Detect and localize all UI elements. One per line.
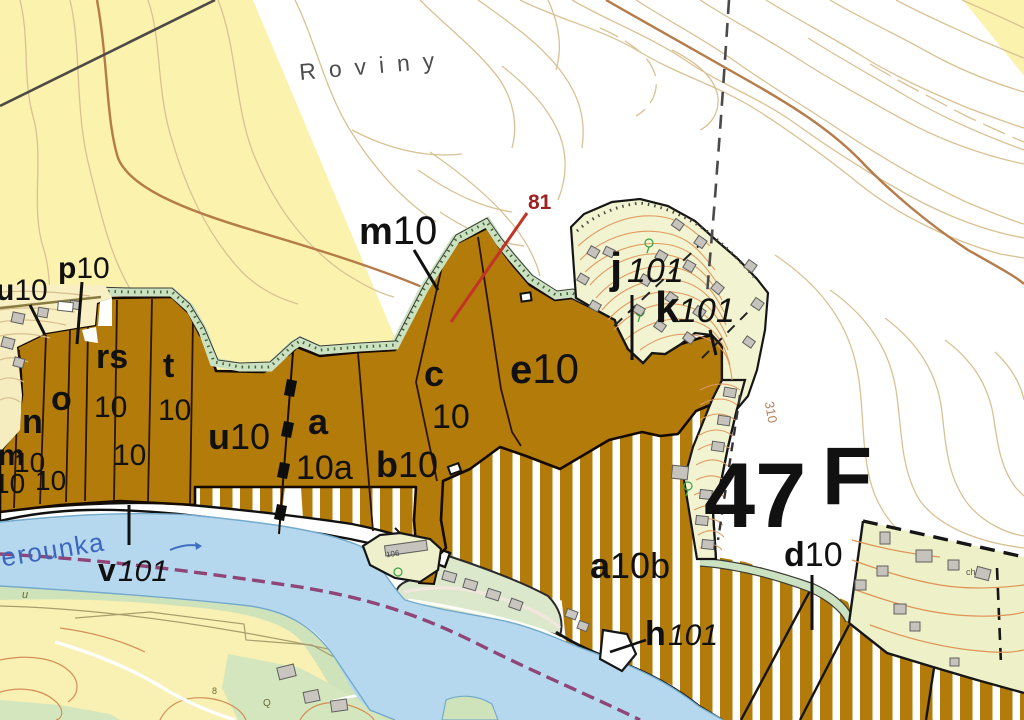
- svg-text:106: 106: [386, 548, 401, 559]
- svg-text:k: k: [655, 283, 680, 332]
- svg-text:rs: rs: [96, 338, 128, 376]
- svg-text:101: 101: [118, 555, 168, 588]
- svg-text:u10: u10: [0, 274, 48, 307]
- svg-text:j: j: [609, 244, 622, 293]
- svg-text:v: v: [98, 552, 116, 588]
- svg-text:10: 10: [113, 439, 146, 472]
- svg-text:8: 8: [212, 686, 217, 696]
- svg-text:a10b: a10b: [590, 545, 670, 586]
- svg-text:101: 101: [668, 619, 718, 652]
- svg-text:10: 10: [432, 398, 470, 436]
- svg-text:h: h: [645, 615, 666, 653]
- svg-text:10: 10: [0, 468, 25, 499]
- svg-text:t: t: [163, 347, 174, 385]
- svg-text:o: o: [51, 380, 72, 418]
- svg-text:10: 10: [158, 394, 191, 427]
- svg-text:e10: e10: [510, 345, 579, 392]
- svg-text:n: n: [22, 403, 43, 441]
- svg-text:10: 10: [94, 391, 127, 424]
- svg-text:ch: ch: [966, 567, 976, 577]
- svg-text:81: 81: [528, 191, 552, 214]
- svg-text:u10: u10: [208, 416, 270, 457]
- svg-text:u: u: [22, 589, 28, 601]
- svg-text:Q: Q: [263, 698, 271, 709]
- svg-text:10: 10: [35, 465, 66, 496]
- svg-text:m10: m10: [359, 209, 437, 253]
- svg-text:101: 101: [678, 292, 735, 330]
- svg-text:b10: b10: [376, 444, 438, 485]
- svg-text:p10: p10: [58, 252, 110, 285]
- svg-text:47: 47: [704, 445, 806, 547]
- svg-text:a: a: [308, 401, 329, 442]
- svg-text:F: F: [822, 431, 872, 522]
- svg-text:c: c: [424, 353, 444, 394]
- svg-text:10a: 10a: [296, 449, 353, 487]
